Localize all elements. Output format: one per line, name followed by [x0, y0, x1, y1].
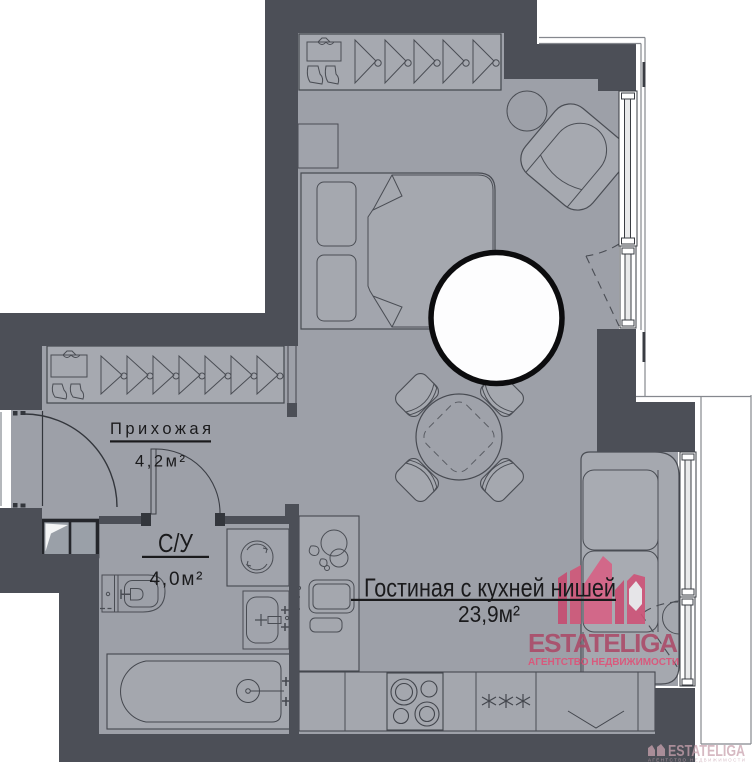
svg-text:23,9м²: 23,9м² — [458, 601, 520, 627]
svg-text:АГЕНТСТВО НЕДВИЖИМОСТИ: АГЕНТСТВО НЕДВИЖИМОСТИ — [648, 758, 745, 763]
svg-text:ESTATELIGA: ESTATELIGA — [528, 628, 678, 658]
svg-text:Гостиная с кухней нишей: Гостиная с кухней нишей — [364, 573, 616, 603]
svg-text:С/У: С/У — [158, 528, 193, 558]
svg-text:АГЕНТСТВО НЕДВИЖИМОСТИ: АГЕНТСТВО НЕДВИЖИМОСТИ — [528, 657, 679, 668]
